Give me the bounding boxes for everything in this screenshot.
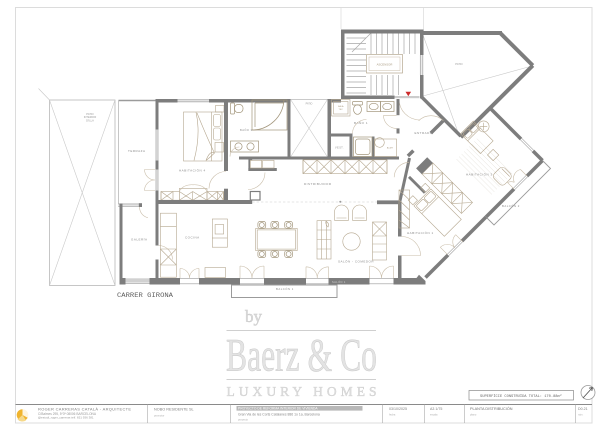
- svg-text:03/10/2025: 03/10/2025: [389, 407, 407, 411]
- svg-text:núm.: núm.: [578, 414, 584, 417]
- svg-text:SALA: SALA: [338, 105, 344, 108]
- svg-text:ROGER CARRERAS CATALÀ - ARQUIT: ROGER CARRERAS CATALÀ - ARQUITECTE: [38, 407, 131, 412]
- svg-text:D'ILLA: D'ILLA: [86, 118, 94, 122]
- svg-text:NOBO RESIDENTE SL: NOBO RESIDENTE SL: [154, 408, 194, 412]
- svg-text:PATIO: PATIO: [306, 103, 313, 106]
- svg-text:ENTRADA.: ENTRADA.: [415, 131, 434, 135]
- svg-text:BALCÓN 1: BALCÓN 1: [276, 286, 294, 291]
- svg-text:VEST.: VEST.: [335, 147, 344, 150]
- svg-text:DISTRIBUIDOR: DISTRIBUIDOR: [304, 182, 332, 186]
- svg-text:@estudi_roger_carreras tel: @estudi_roger_carreras telf. 651 936 381: [38, 416, 94, 420]
- svg-text:promotor: promotor: [154, 414, 165, 418]
- svg-text:ASCENSOR: ASCENSOR: [377, 63, 393, 67]
- svg-text:PLANTA DISTRIBUCIÓN: PLANTA DISTRIBUCIÓN: [470, 406, 513, 411]
- svg-text:A3 1/75: A3 1/75: [430, 407, 442, 411]
- svg-text:fecha: fecha: [389, 413, 396, 417]
- svg-text:proyecto: proyecto: [238, 418, 249, 422]
- svg-text:plano: plano: [470, 413, 477, 417]
- svg-text:BALCÓN 2: BALCÓN 2: [502, 203, 520, 208]
- svg-text:Gran Via de les Corts Catalane: Gran Via de les Corts Catalanes 886 1o 1…: [238, 413, 320, 417]
- svg-text:escala: escala: [430, 413, 438, 417]
- svg-text:Baerz & Co: Baerz & Co: [226, 330, 377, 382]
- svg-text:PROYECTO DE REFORMA INTERIOR D: PROYECTO DE REFORMA INTERIOR DE VIVIENDA: [238, 407, 318, 411]
- svg-text:by: by: [245, 307, 263, 326]
- svg-text:GALERÍA: GALERÍA: [131, 238, 148, 242]
- svg-text:COCINA: COCINA: [185, 236, 200, 240]
- svg-text:PATIO: PATIO: [455, 62, 462, 66]
- svg-text:CARRER GIRONA: CARRER GIRONA: [117, 292, 173, 299]
- svg-text:TEC: TEC: [339, 109, 344, 111]
- svg-text:TERRAZA: TERRAZA: [128, 149, 146, 153]
- svg-text:SALÓN - COMEDOR: SALÓN - COMEDOR: [338, 259, 374, 264]
- svg-text:HABITACIÓN 1: HABITACIÓN 1: [407, 230, 434, 235]
- svg-text:HABITACIÓN 3: HABITACIÓN 3: [466, 172, 493, 177]
- svg-text:SUPERFÍCIE CONSTRUÏDA TOTAL: 1: SUPERFÍCIE CONSTRUÏDA TOTAL: 170.88m²: [480, 394, 562, 399]
- svg-text:ACMT: ACMT: [387, 147, 394, 150]
- svg-text:D0.21: D0.21: [578, 407, 588, 411]
- svg-text:HABITACIÓN 4: HABITACIÓN 4: [179, 168, 206, 173]
